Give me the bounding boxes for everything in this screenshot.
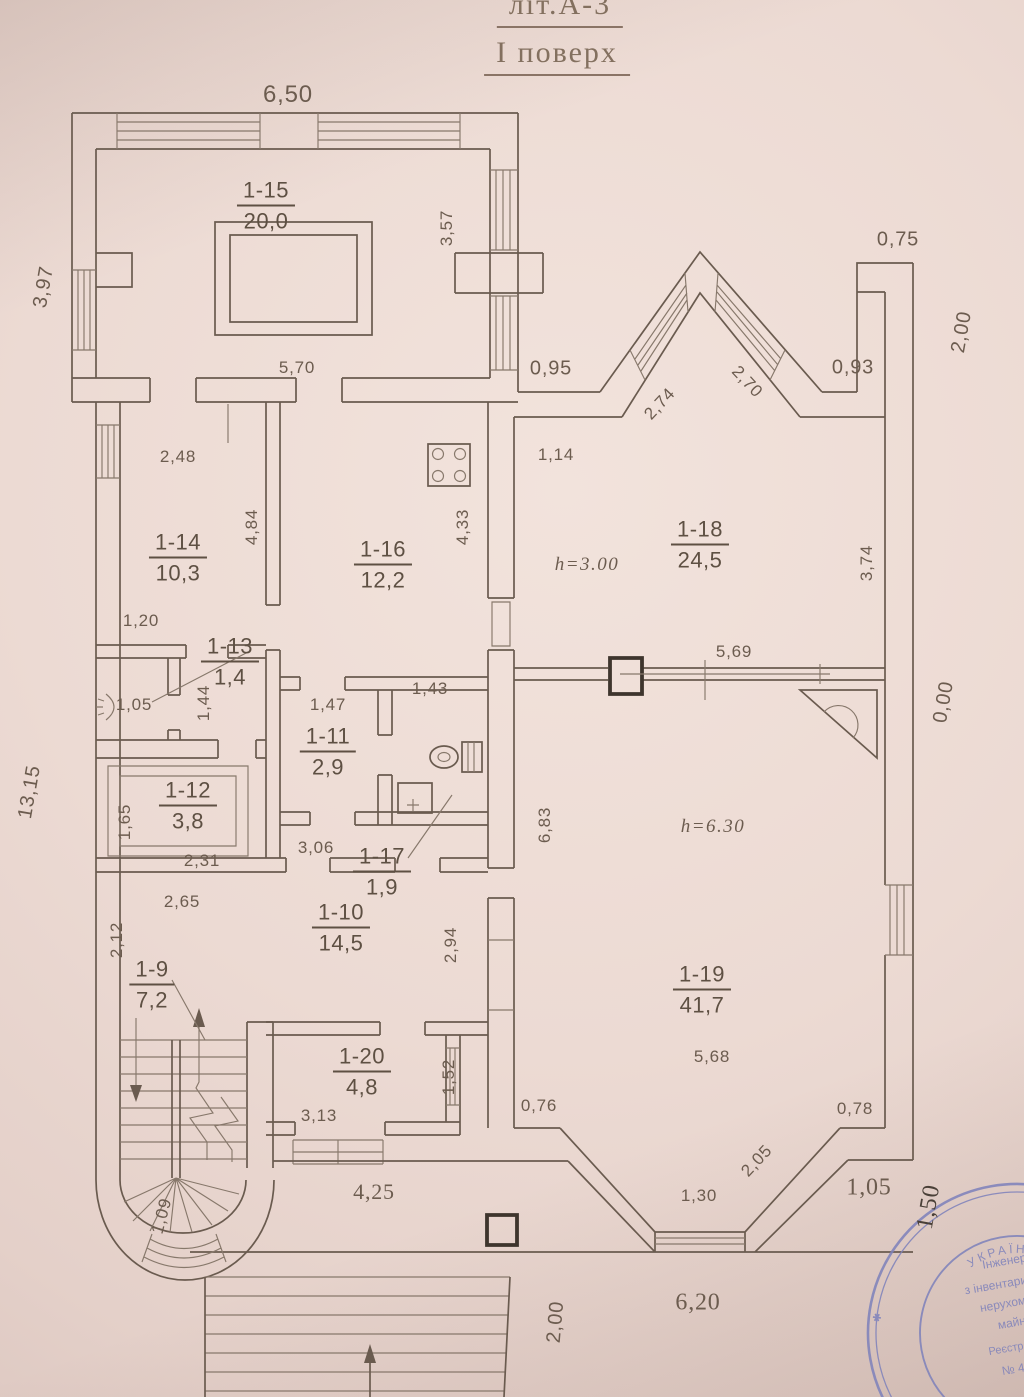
room-area: 12,2: [361, 568, 406, 594]
plan-title-floor: І поверх: [484, 36, 630, 76]
room-number: 1-16: [354, 537, 412, 566]
dim-label: 2,00: [947, 309, 977, 354]
room-area: 10,3: [156, 561, 201, 587]
dim-label: 0,78: [837, 1099, 873, 1119]
dim-label: 6,83: [535, 807, 555, 843]
dim-label: 1,44: [194, 685, 214, 721]
room-label-1-16: 1-16 12,2: [354, 537, 412, 594]
dim-label: 3,57: [437, 210, 457, 246]
room-number: 1-9: [129, 957, 174, 986]
dim-label: 1,43: [412, 679, 448, 699]
dim-label: 2,70: [727, 362, 766, 402]
dim-label: 1,14: [538, 445, 574, 465]
room-label-1-13: 1-13 1,4: [201, 634, 259, 691]
room-area: 7,2: [136, 988, 168, 1014]
dim-label: 3,13: [301, 1106, 337, 1126]
dim-label: 1,09: [148, 1196, 177, 1236]
dim-label: 4,33: [453, 509, 473, 545]
dim-label: 6,20: [675, 1290, 720, 1317]
dim-label: 1,65: [115, 804, 135, 840]
room-area: 1,9: [366, 875, 398, 901]
room-area: 3,8: [172, 809, 204, 835]
room-number: 1-18: [671, 517, 729, 546]
room-label-1-15: 1-15 20,0: [237, 178, 295, 235]
room-area: 4,8: [346, 1075, 378, 1101]
floor-plan-page: УКРАЇНА ПАЗІЙ ОЛЕКСАНДР П ✱ ✱ Інженер з …: [0, 0, 1024, 1397]
dim-label: 4,25: [353, 1179, 395, 1205]
room-area: 24,5: [678, 548, 723, 574]
dim-label: 2,12: [107, 922, 127, 958]
room-label-1-14: 1-14 10,3: [149, 530, 207, 587]
dim-label: 13,15: [14, 763, 46, 820]
dim-label: 1,05: [846, 1175, 891, 1202]
room-label-1-18: 1-18 24,5: [671, 517, 729, 574]
height-note-1-19: h=6.30: [681, 816, 746, 838]
room-area: 2,9: [312, 755, 344, 781]
room-label-1-17: 1-17 1,9: [353, 844, 411, 901]
dim-label: 0,75: [877, 229, 919, 252]
room-area: 1,4: [214, 665, 246, 691]
dim-label: 2,94: [441, 927, 461, 963]
room-label-1-19: 1-19 41,7: [673, 962, 731, 1019]
room-number: 1-12: [159, 778, 217, 807]
room-number: 1-20: [333, 1044, 391, 1073]
height-note-1-18: h=3.00: [555, 554, 620, 576]
dim-label: 5,70: [279, 358, 315, 378]
room-number: 1-14: [149, 530, 207, 559]
room-area: 20,0: [244, 209, 289, 235]
dim-label: 1,30: [681, 1186, 717, 1206]
room-number: 1-10: [312, 900, 370, 929]
dim-label: 0,93: [832, 357, 874, 380]
room-number: 1-13: [201, 634, 259, 663]
dim-label: 1,52: [439, 1059, 459, 1095]
room-number: 1-11: [300, 724, 356, 753]
dim-label: 2,05: [737, 1141, 776, 1181]
room-label-1-20: 1-20 4,8: [333, 1044, 391, 1101]
room-number: 1-19: [673, 962, 731, 991]
labels-layer: літ.А-3 І поверх 1-15 20,0 1-14 10,3 1-1…: [0, 0, 1024, 1397]
room-number: 1-15: [237, 178, 295, 207]
room-area: 41,7: [680, 993, 725, 1019]
dim-label: 6,50: [263, 81, 313, 109]
dim-label: 2,74: [640, 384, 679, 424]
dim-label: 5,69: [716, 642, 752, 662]
dim-label: 1,47: [310, 695, 346, 715]
plan-title-building: літ.А-3: [497, 0, 623, 28]
dim-label: 4,84: [242, 509, 262, 545]
dim-label: 1,05: [116, 695, 152, 715]
room-number: 1-17: [353, 844, 411, 873]
room-area: 14,5: [319, 931, 364, 957]
dim-label: 0,76: [521, 1096, 557, 1116]
dim-label: 3,97: [29, 264, 59, 309]
dim-label: 0,00: [929, 679, 959, 724]
dim-label: 5,68: [694, 1047, 730, 1067]
room-label-1-11: 1-11 2,9: [300, 724, 356, 781]
room-label-1-10: 1-10 14,5: [312, 900, 370, 957]
dim-label: 2,48: [160, 447, 196, 467]
dim-label: 3,74: [857, 545, 877, 581]
dim-label: 2,65: [164, 892, 200, 912]
dim-label: 1,50: [912, 1182, 946, 1231]
dim-label: 2,31: [184, 851, 220, 871]
room-label-1-9: 1-9 7,2: [129, 957, 174, 1014]
dim-label: 2,00: [543, 1300, 570, 1344]
dim-label: 3,06: [298, 838, 334, 858]
dim-label: 1,20: [123, 611, 159, 631]
room-label-1-12: 1-12 3,8: [159, 778, 217, 835]
dim-label: 0,95: [530, 358, 572, 381]
